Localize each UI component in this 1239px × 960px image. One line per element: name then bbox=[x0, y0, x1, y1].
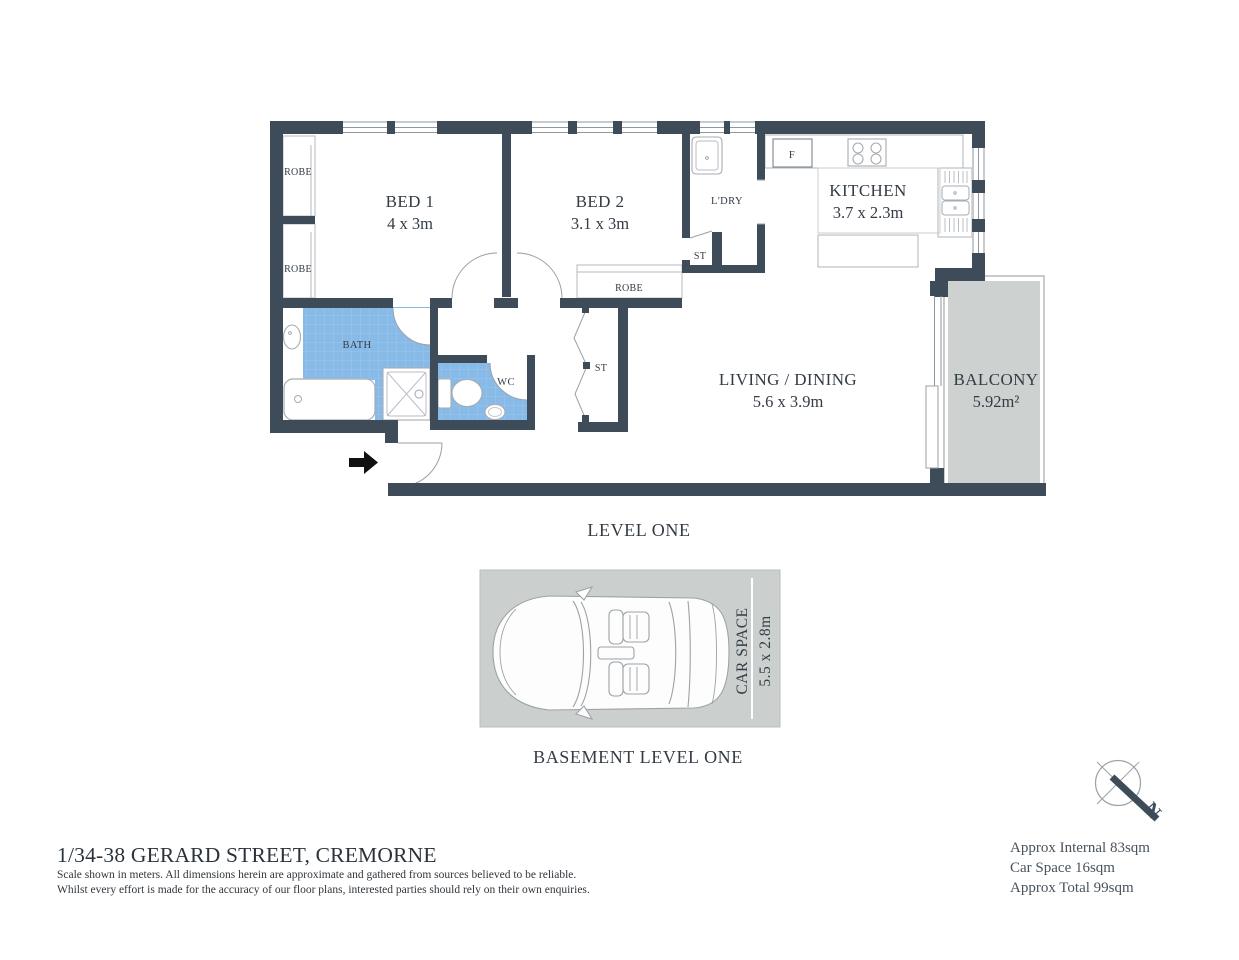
window bbox=[730, 121, 755, 134]
bed1-label: BED 1 bbox=[386, 192, 435, 211]
basement-caption: BASEMENT LEVEL ONE bbox=[533, 747, 743, 767]
robe-top-label: ROBE bbox=[284, 167, 312, 178]
internal-area: Approx Internal 83sqm bbox=[1010, 838, 1150, 858]
store-laundry-door bbox=[690, 231, 712, 238]
toilet bbox=[438, 379, 482, 408]
level-one-caption: LEVEL ONE bbox=[587, 520, 690, 540]
kitchen-label: KITCHEN bbox=[829, 181, 906, 200]
area-summary: Approx Internal 83sqm Car Space 16sqm Ap… bbox=[1010, 838, 1150, 898]
wc-label: WC bbox=[497, 377, 515, 388]
window bbox=[577, 121, 613, 134]
total-area: Approx Total 99sqm bbox=[1010, 878, 1150, 898]
window bbox=[343, 121, 387, 134]
fridge-label: F bbox=[789, 150, 795, 161]
car-space-label: CAR SPACE bbox=[734, 607, 751, 694]
laundry-door-jambs bbox=[757, 180, 765, 224]
window bbox=[395, 121, 437, 134]
window bbox=[972, 193, 985, 219]
balcony-dims: 5.92m² bbox=[973, 392, 1020, 411]
car-top-view bbox=[493, 587, 729, 719]
window bbox=[700, 121, 724, 134]
window bbox=[622, 121, 657, 134]
entry-door-swing bbox=[398, 443, 442, 487]
robe-closet-bottom bbox=[283, 224, 315, 298]
robe-bottom-label: ROBE bbox=[284, 264, 312, 275]
wc-basin bbox=[485, 405, 505, 420]
car-space-area: Car Space 16sqm bbox=[1010, 858, 1150, 878]
bed2-dims: 3.1 x 3m bbox=[571, 214, 629, 233]
shower bbox=[383, 368, 430, 420]
living-dims: 5.6 x 3.9m bbox=[753, 392, 824, 411]
bath-basin bbox=[284, 325, 301, 349]
kitchen-dims: 3.7 x 2.3m bbox=[833, 203, 904, 222]
stove-icon bbox=[848, 139, 886, 166]
balcony-glazing bbox=[926, 296, 941, 468]
living-label: LIVING / DINING bbox=[719, 370, 857, 389]
bed1-door-swing bbox=[452, 253, 497, 298]
disclaimer-line-1: Scale shown in meters. All dimensions he… bbox=[57, 868, 757, 883]
window bbox=[972, 232, 985, 253]
store-hall-bifold-door bbox=[574, 306, 590, 422]
property-address: 1/34-38 GERARD STREET, CREMORNE bbox=[57, 843, 757, 868]
balcony-label: BALCONY bbox=[954, 370, 1039, 389]
window bbox=[532, 121, 568, 134]
car-space-dims: 5.5 x 2.8m bbox=[757, 615, 774, 686]
robe-bed2-label: ROBE bbox=[615, 283, 643, 294]
bath-label: BATH bbox=[342, 340, 371, 351]
disclaimer-line-2: Whilst every effort is made for the accu… bbox=[57, 883, 757, 898]
entry-arrow-icon bbox=[349, 451, 378, 474]
bathtub bbox=[284, 379, 375, 420]
bed2-door-swing bbox=[517, 253, 562, 298]
bed1-dims: 4 x 3m bbox=[387, 214, 433, 233]
window bbox=[972, 148, 985, 180]
floorplan-page: N BED 1 4 x 3m BED 2 3.1 x 3m KITCHEN 3.… bbox=[0, 0, 1239, 960]
laundry-sink bbox=[692, 137, 722, 174]
bed2-label: BED 2 bbox=[576, 192, 625, 211]
laundry-label: L'DRY bbox=[711, 196, 743, 207]
address-block: 1/34-38 GERARD STREET, CREMORNE Scale sh… bbox=[57, 843, 757, 898]
store-laundry-label: ST bbox=[694, 251, 706, 262]
store-hall-label: ST bbox=[595, 363, 607, 374]
floorplan-canvas: N BED 1 4 x 3m BED 2 3.1 x 3m KITCHEN 3.… bbox=[0, 0, 1239, 960]
